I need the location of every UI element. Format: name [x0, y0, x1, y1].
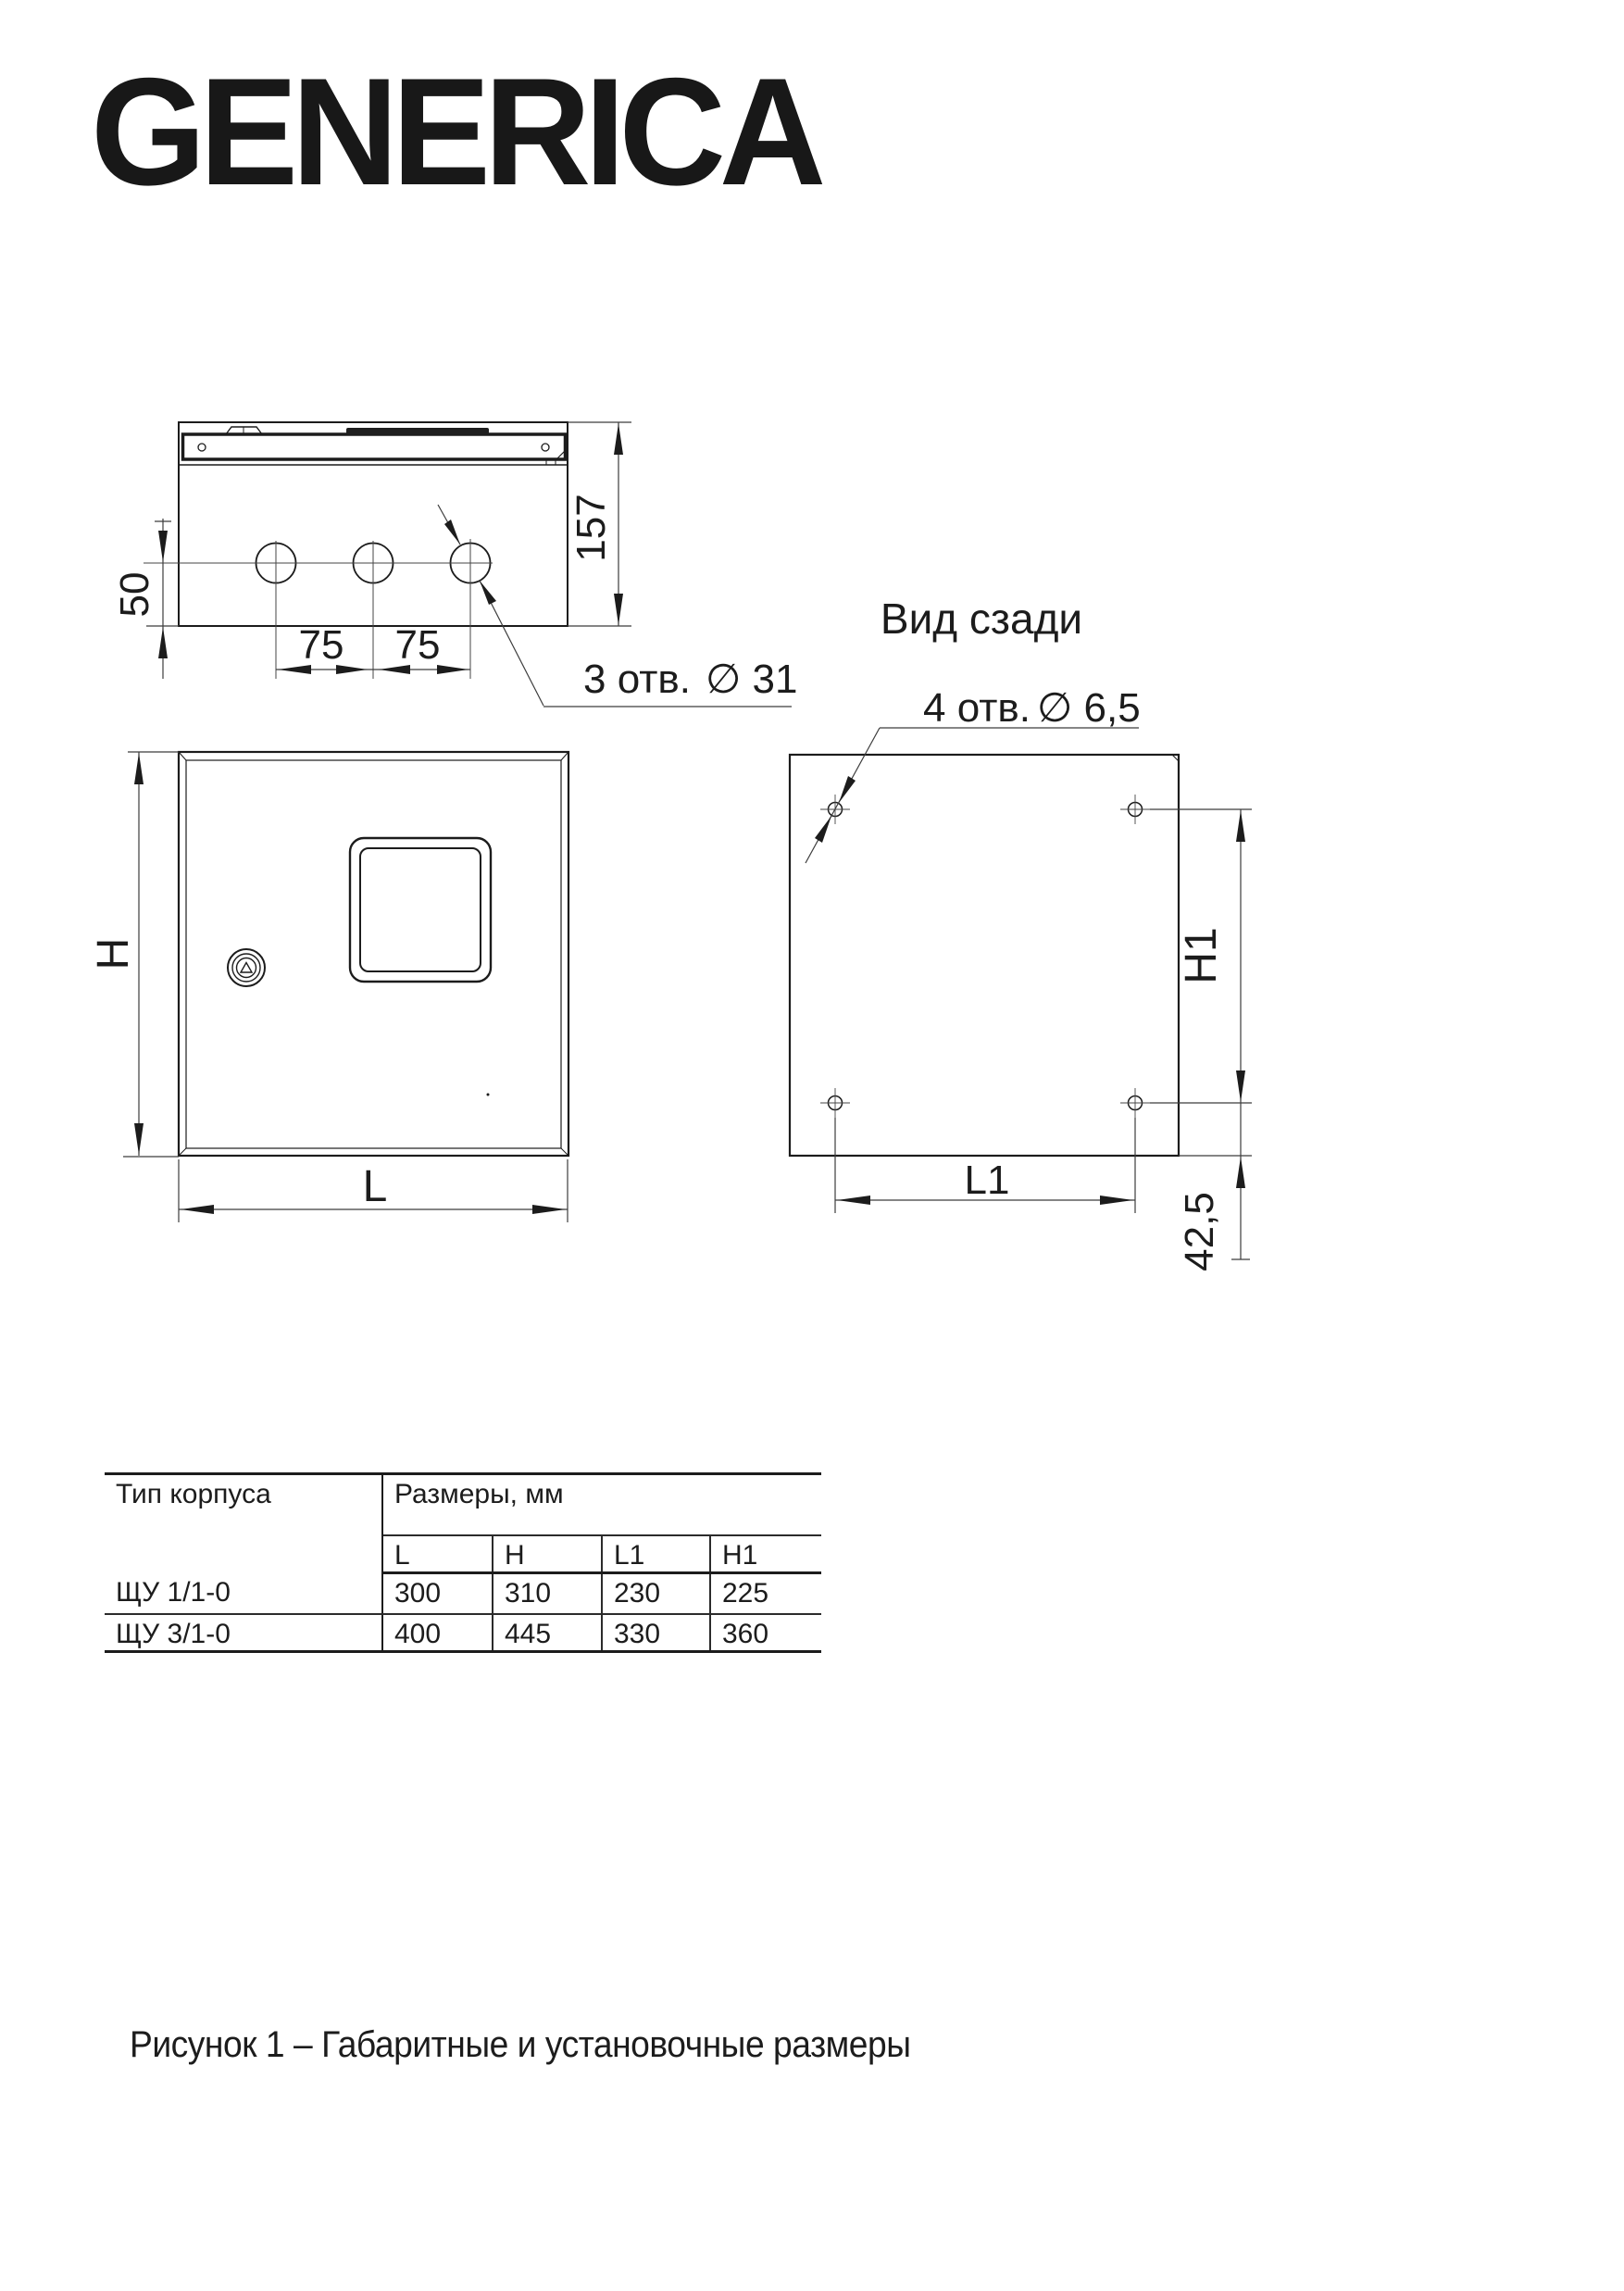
dim-H-label: H [89, 938, 138, 970]
rear-holes-dia: ∅ 6,5 [1037, 685, 1141, 731]
top-holes-note: 3 отв. [583, 657, 691, 702]
table-header-L1: L1 [602, 1535, 710, 1573]
meter-window [350, 838, 491, 982]
table-header-type: Тип корпуса [105, 1474, 382, 1573]
cell-H1: 225 [710, 1573, 821, 1614]
rear-holes-note: 4 отв. [923, 685, 1031, 731]
cell-type: ЩУ 3/1-0 [105, 1614, 382, 1652]
cell-L1: 330 [602, 1614, 710, 1652]
front-view [123, 752, 568, 1222]
dim-157-label: 157 [568, 494, 614, 561]
table-row: ЩУ 3/1-0 400 445 330 360 [105, 1614, 821, 1652]
dim-75a-label: 75 [299, 622, 344, 668]
cell-L1: 230 [602, 1573, 710, 1614]
rear-view-labels: Вид сзади 4 отв. ∅ 6,5 H1 L1 42,5 [881, 595, 1226, 1271]
figure-caption: Рисунок 1 – Габаритные и установочные ра… [130, 2024, 911, 2066]
table-row: ЩУ 1/1-0 300 310 230 225 [105, 1573, 821, 1614]
handle [346, 428, 489, 434]
dim-42-5-label: 42,5 [1177, 1192, 1222, 1271]
table-header-H1: H1 [710, 1535, 821, 1573]
dim-L-label: L [363, 1162, 388, 1211]
door-lock [228, 949, 265, 986]
dim-H1-label: H1 [1177, 927, 1226, 983]
dim-50-label: 50 [112, 572, 157, 618]
dimensions-table: Тип корпуса Размеры, мм L H L1 H1 ЩУ 1/1… [105, 1472, 821, 1653]
cell-H: 310 [493, 1573, 602, 1614]
dim-75b-label: 75 [395, 622, 441, 668]
top-holes-dia: ∅ 31 [706, 657, 798, 702]
dim-L1-label: L1 [965, 1158, 1010, 1203]
table-header-H: H [493, 1535, 602, 1573]
mounting-holes [820, 795, 1150, 1118]
rear-view-title: Вид сзади [881, 595, 1082, 643]
table-header-L: L [382, 1535, 493, 1573]
rear-view [790, 728, 1252, 1259]
cell-H1: 360 [710, 1614, 821, 1652]
dimension-drawing: 50 75 75 157 3 отв. ∅ 31 [0, 0, 1624, 2291]
cell-L: 300 [382, 1573, 493, 1614]
datasheet-page: GENERICA [0, 0, 1624, 2291]
top-view [144, 422, 792, 707]
cell-type: ЩУ 1/1-0 [105, 1573, 382, 1614]
table-header-sizes: Размеры, мм [382, 1474, 821, 1535]
cell-H: 445 [493, 1614, 602, 1652]
cell-L: 400 [382, 1614, 493, 1652]
